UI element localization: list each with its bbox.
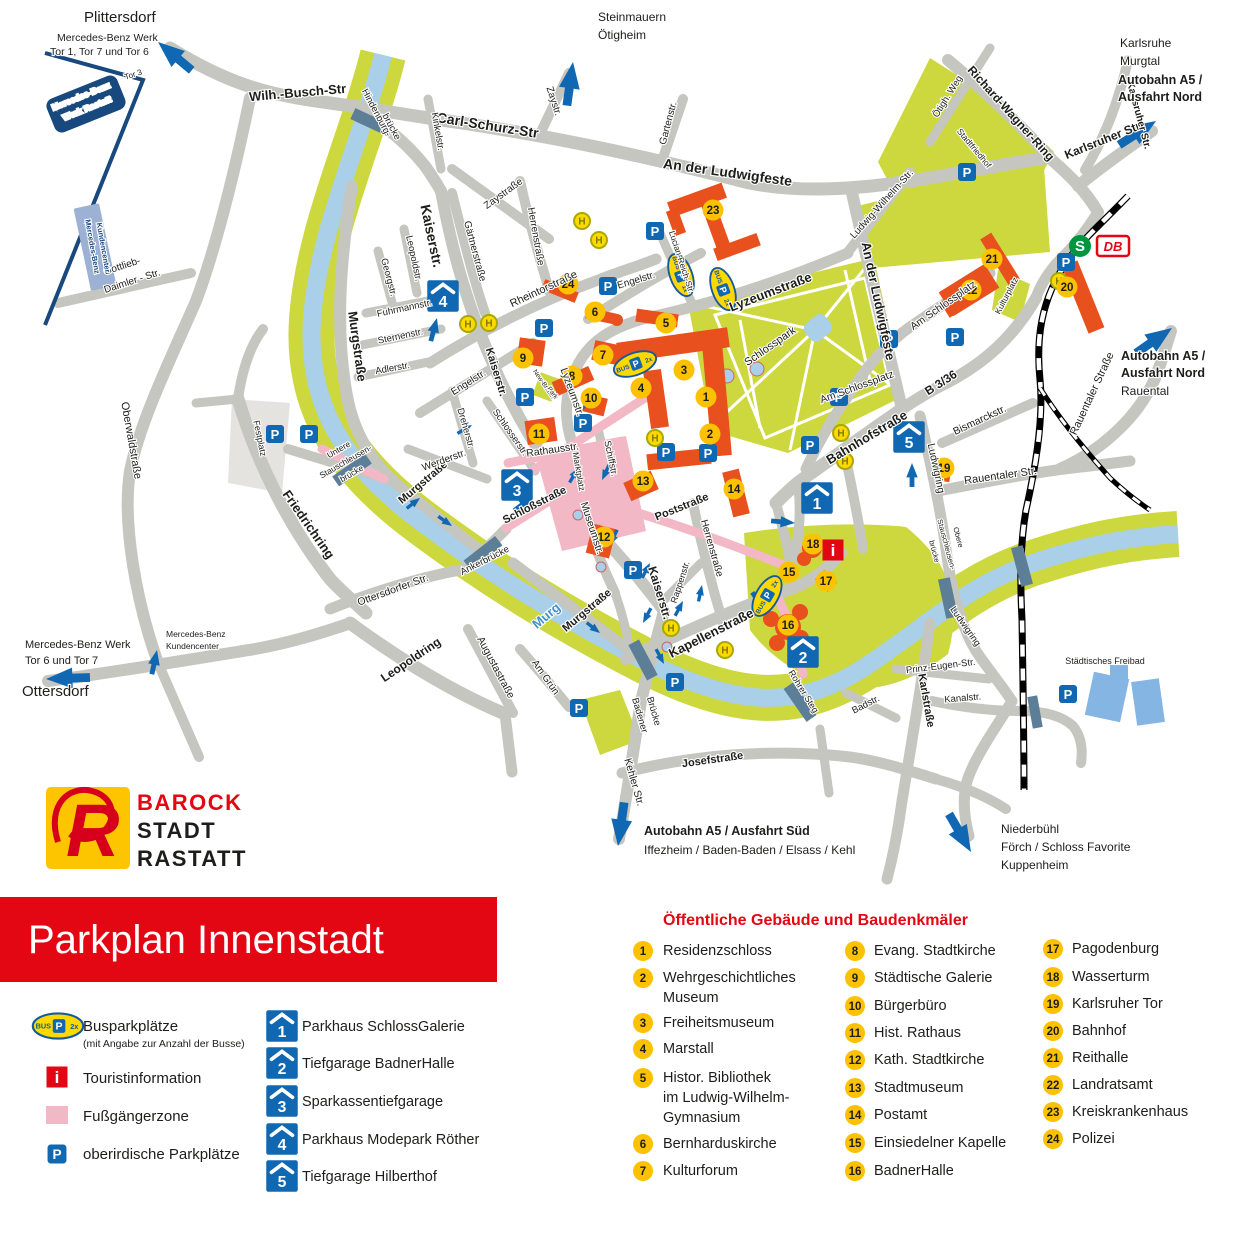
parking-icon: P [958,163,976,181]
legend-buildings-title: Öffentliche Gebäude und Baudenkmäler [663,910,968,929]
map-label: Iffezheim / Baden-Baden / Elsass / Kehl [644,843,855,857]
svg-text:P: P [651,224,660,239]
svg-text:H: H [464,320,471,331]
legend-building-label: Bürgerbüro [874,998,947,1014]
svg-text:4: 4 [278,1137,287,1154]
svg-text:DB: DB [1104,239,1123,254]
svg-text:4: 4 [640,1044,647,1056]
legend-building-label: Kreiskrankenhaus [1072,1104,1188,1120]
svg-text:23: 23 [707,205,720,217]
svg-text:i: i [55,1068,60,1087]
legend-building-label: Stadtmuseum [874,1080,963,1096]
legend-building-label: Gymnasium [663,1110,740,1126]
sbahn-icon: S [1069,235,1091,257]
legend-building-item: 16BadnerHalle [845,1161,954,1181]
map-marker-4: 4 [631,378,652,399]
parking-icon: P [657,443,675,461]
legend-building-label: im Ludwig-Wilhelm- [663,1090,790,1106]
legend-building-label: Bahnhof [1072,1023,1127,1039]
map-label: Tor 1, Tor 7 und Tor 6 [50,46,149,58]
legend-building-label: Reithalle [1072,1050,1128,1066]
bus-stop-icon: H [591,232,607,248]
svg-text:2: 2 [707,429,713,441]
page-title: Parkplan Innenstadt [28,918,384,962]
svg-text:15: 15 [849,1138,862,1150]
map-label: Mercedes-Benz Werk [25,639,131,651]
svg-text:P: P [540,321,549,336]
legend-building-label: Einsiedelner Kapelle [874,1135,1006,1151]
svg-text:6: 6 [640,1139,646,1151]
map-marker-17: 17 [816,571,837,592]
parking-icon: P [624,561,642,579]
map-label: Mercedes-Benz [166,629,226,639]
logo-word-rastatt: RASTATT [137,846,247,871]
bus-oval-p: P [56,1021,63,1033]
parkhaus-icon-4: 4 [266,1123,298,1155]
svg-text:21: 21 [1047,1053,1060,1065]
map-label: Ottersdorf [22,683,90,700]
svg-text:21: 21 [986,254,999,266]
svg-text:P: P [271,427,280,442]
parking-icon: P [599,277,617,295]
svg-text:18: 18 [1047,972,1060,984]
parkhaus-icon-2: 2 [787,636,819,668]
svg-text:P: P [1062,255,1071,270]
bus-stop-icon: H [460,316,476,332]
legend-building-item: 18Wasserturm [1043,967,1150,987]
map-marker-15: 15 [779,562,800,583]
svg-text:9: 9 [852,973,858,985]
svg-text:14: 14 [849,1110,862,1122]
bus-stop-icon: H [574,213,590,229]
db-icon: DB [1097,236,1129,256]
parking-icon: P [266,425,284,443]
legend-building-item: 10Bürgerbüro [845,996,947,1016]
svg-text:3: 3 [278,1099,287,1116]
building-blob [611,314,623,326]
svg-text:S: S [1075,238,1085,255]
svg-text:12: 12 [849,1055,862,1067]
parking-icon: P [946,328,964,346]
svg-text:9: 9 [520,353,526,365]
bus-stop-icon: H [663,620,679,636]
map-label: Ausfahrt Nord [1121,366,1205,380]
legend-building-label: Polizei [1072,1131,1115,1147]
legend-building-item: 4Marstall [633,1039,714,1059]
legend-building-item: 21Reithalle [1043,1048,1128,1068]
map-label: Förch / Schloss Favorite [1001,840,1131,854]
legend-building-label: Evang. Stadtkirche [874,943,996,959]
legend-building-item: 22Landratsamt [1043,1075,1153,1095]
svg-text:2: 2 [640,973,646,985]
svg-text:17: 17 [1047,944,1060,956]
map-label: Niederbühl [1001,822,1059,836]
svg-text:24: 24 [1047,1134,1060,1146]
map-label: Steinmauern [598,10,666,24]
logo-letter: R [66,789,119,872]
legend-building-label: Residenzschloss [663,943,772,959]
svg-text:1: 1 [813,496,822,513]
map-label: Plittersdorf [84,9,157,26]
svg-text:3: 3 [640,1018,646,1030]
map-label: Kuppenheim [1001,858,1068,872]
legend-bus-label: Busparkplätze [83,1018,178,1035]
svg-text:16: 16 [849,1166,862,1178]
legend-building-item: 24Polizei [1043,1129,1115,1149]
svg-text:P: P [629,563,638,578]
legend-building-label: Landratsamt [1072,1077,1153,1093]
map-label: Autobahn A5 / Ausfahrt Süd [644,824,810,838]
title-banner: Parkplan Innenstadt [0,897,497,982]
map-marker-20: 20 [1057,277,1078,298]
svg-text:H: H [721,646,728,657]
svg-text:P: P [579,416,588,431]
legend-parkhaus-label: Tiefgarage Hilberthof [302,1169,438,1185]
map-marker-6: 6 [585,302,606,323]
svg-text:19: 19 [1047,999,1060,1011]
svg-text:13: 13 [637,476,650,488]
map-marker-5: 5 [656,313,677,334]
svg-text:5: 5 [640,1073,647,1085]
parking-icon: P [300,425,318,443]
parkplan-poster: BUSP1xBUSP2xBUSP2xBUSP2x PPPPPPPPPPPPPPP… [0,0,1240,1240]
legend-parkhaus-label: Tiefgarage BadnerHalle [302,1056,455,1072]
parkhaus-icon-1: 1 [266,1010,298,1042]
legend-building-label: Karlsruher Tor [1072,996,1163,1012]
bus-oval-text: BUS [36,1022,52,1031]
parking-icon: P [1059,685,1077,703]
svg-text:P: P [671,675,680,690]
svg-text:4: 4 [439,294,448,311]
legend-info-label: Touristinformation [83,1070,201,1087]
svg-text:P: P [521,390,530,405]
svg-text:1: 1 [278,1024,287,1041]
svg-text:H: H [837,429,844,440]
bus-stop-icon: H [833,425,849,441]
svg-text:20: 20 [1061,282,1074,294]
svg-text:P: P [575,701,584,716]
svg-text:11: 11 [533,429,546,441]
bus-oval-count: 2x [70,1022,79,1031]
svg-text:H: H [485,319,492,330]
legend-parkhaus-label: Parkhaus SchlossGalerie [302,1019,465,1035]
parkhaus-icon-2: 2 [266,1047,298,1079]
parking-icon: P [699,444,717,462]
legend-parkhaus-label: Sparkassentiefgarage [302,1094,443,1110]
svg-text:5: 5 [278,1174,287,1191]
svg-text:1: 1 [640,946,647,958]
legend-building-label: Bernharduskirche [663,1136,777,1152]
parking-icon: P [646,222,664,240]
legend-building-label: Kulturforum [663,1163,738,1179]
map-marker-9: 9 [513,348,534,369]
svg-text:13: 13 [849,1083,862,1095]
map-label: Ötigheim [598,28,646,42]
legend-building-label: Wasserturm [1072,969,1150,985]
bus-stop-icon: H [481,315,497,331]
map-marker-2: 2 [700,424,721,445]
svg-text:10: 10 [585,393,598,405]
svg-text:P: P [963,165,972,180]
map-marker-16: 16 [778,615,799,636]
map-marker-21: 21 [982,249,1003,270]
map-marker-7: 7 [593,345,614,366]
svg-text:15: 15 [783,567,796,579]
svg-text:P: P [305,427,314,442]
logo-word-barock: BAROCK [137,790,243,815]
legend-building-label: Pagodenburg [1072,941,1159,957]
parking-icon: P [1057,253,1075,271]
legend-building-item: 7Kulturforum [633,1161,738,1181]
parkhaus-icon-3: 3 [501,469,533,501]
map-label: Ausfahrt Nord [1118,90,1202,104]
legend-parking-label: oberirdische Parkplätze [83,1146,240,1163]
svg-text:17: 17 [820,576,833,588]
svg-text:8: 8 [852,946,859,958]
svg-text:2: 2 [799,650,808,667]
svg-text:23: 23 [1047,1107,1060,1119]
svg-text:7: 7 [600,350,606,362]
bus-stop-icon: H [647,430,663,446]
legend-building-label: Histor. Bibliothek [663,1070,772,1086]
legend-building-label: Postamt [874,1107,927,1123]
legend-fusszone-label: Fußgängerzone [83,1108,189,1125]
map-label: Murgtal [1120,54,1160,68]
svg-text:4: 4 [638,383,645,395]
svg-text:2: 2 [278,1061,287,1078]
svg-text:1: 1 [703,392,710,404]
svg-text:14: 14 [728,484,741,496]
logo-word-stadt: STADT [137,818,216,843]
svg-text:P: P [806,438,815,453]
legend-building-label: Freiheitsmuseum [663,1015,774,1031]
svg-text:H: H [595,236,602,247]
map-marker-11: 11 [529,424,550,445]
map-label: Autobahn A5 / [1118,73,1203,87]
svg-text:H: H [667,624,674,635]
svg-text:P: P [951,330,960,345]
svg-text:H: H [578,217,585,228]
svg-text:11: 11 [849,1028,862,1040]
parking-icon: P [516,388,534,406]
map-canvas: BUSP1xBUSP2xBUSP2xBUSP2x PPPPPPPPPPPPPPP… [0,0,1240,1240]
legend-building-label: Kath. Stadtkirche [874,1052,984,1068]
map-marker-18: 18 [803,534,824,555]
map-label: Mercedes-Benz Werk [57,32,159,44]
map-label: Kundencenter [166,641,219,651]
map-label: Rauental [1121,384,1169,398]
svg-text:3: 3 [681,365,687,377]
parking-icon: P [666,673,684,691]
map-label: Tor 6 und Tor 7 [25,655,98,667]
legend-building-label: Städtische Galerie [874,970,992,986]
map-marker-13: 13 [633,471,654,492]
parking-icon: P [801,436,819,454]
svg-text:3: 3 [513,483,522,500]
svg-text:5: 5 [663,318,670,330]
svg-text:16: 16 [782,620,795,632]
parking-icon: P [570,699,588,717]
svg-text:22: 22 [1047,1080,1060,1092]
svg-text:P: P [1064,687,1073,702]
tourist-info-icon: i [823,540,844,561]
parkhaus-icon-5: 5 [266,1160,298,1192]
legend-building-label: Marstall [663,1041,714,1057]
svg-text:i: i [831,541,836,560]
map-marker-23: 23 [703,200,724,221]
parkhaus-icon-1: 1 [801,482,833,514]
svg-text:P: P [52,1147,61,1162]
map-label: Städtisches Freibad [1065,656,1145,666]
svg-text:P: P [662,445,671,460]
legend-building-label: Wehrgeschichtliches [663,970,796,986]
svg-text:7: 7 [640,1166,646,1178]
bus-parking-oval: BUSP2x [33,1013,83,1038]
map-marker-14: 14 [724,479,745,500]
legend-fusszone-swatch [46,1106,68,1124]
legend-parkhaus-label: Parkhaus Modepark Röther [302,1132,479,1148]
legend-building-item: 14Postamt [845,1105,927,1125]
legend-building-label: Hist. Rathaus [874,1025,961,1041]
svg-text:6: 6 [592,307,598,319]
bus-stop-icon: H [717,642,733,658]
svg-text:P: P [604,279,613,294]
svg-text:20: 20 [1047,1026,1060,1038]
map-marker-3: 3 [674,360,695,381]
map-label: Karlsruhe [1120,36,1172,50]
map-marker-1: 1 [696,387,717,408]
legend-building-label: BadnerHalle [874,1163,954,1179]
tourist-info-icon: i [47,1067,68,1088]
svg-text:5: 5 [905,435,914,452]
parking-icon: P [48,1145,67,1164]
parkhaus-icon-3: 3 [266,1085,298,1117]
svg-text:18: 18 [807,539,820,551]
svg-text:P: P [704,446,713,461]
svg-text:10: 10 [849,1001,862,1013]
svg-text:H: H [651,434,658,445]
legend-bus-sublabel: (mit Angabe zur Anzahl der Busse) [83,1038,245,1050]
legend-building-item: 20Bahnhof [1043,1021,1127,1041]
parking-icon: P [535,319,553,337]
map-label: Autobahn A5 / [1121,349,1206,363]
legend-building-label: Museum [663,990,719,1006]
